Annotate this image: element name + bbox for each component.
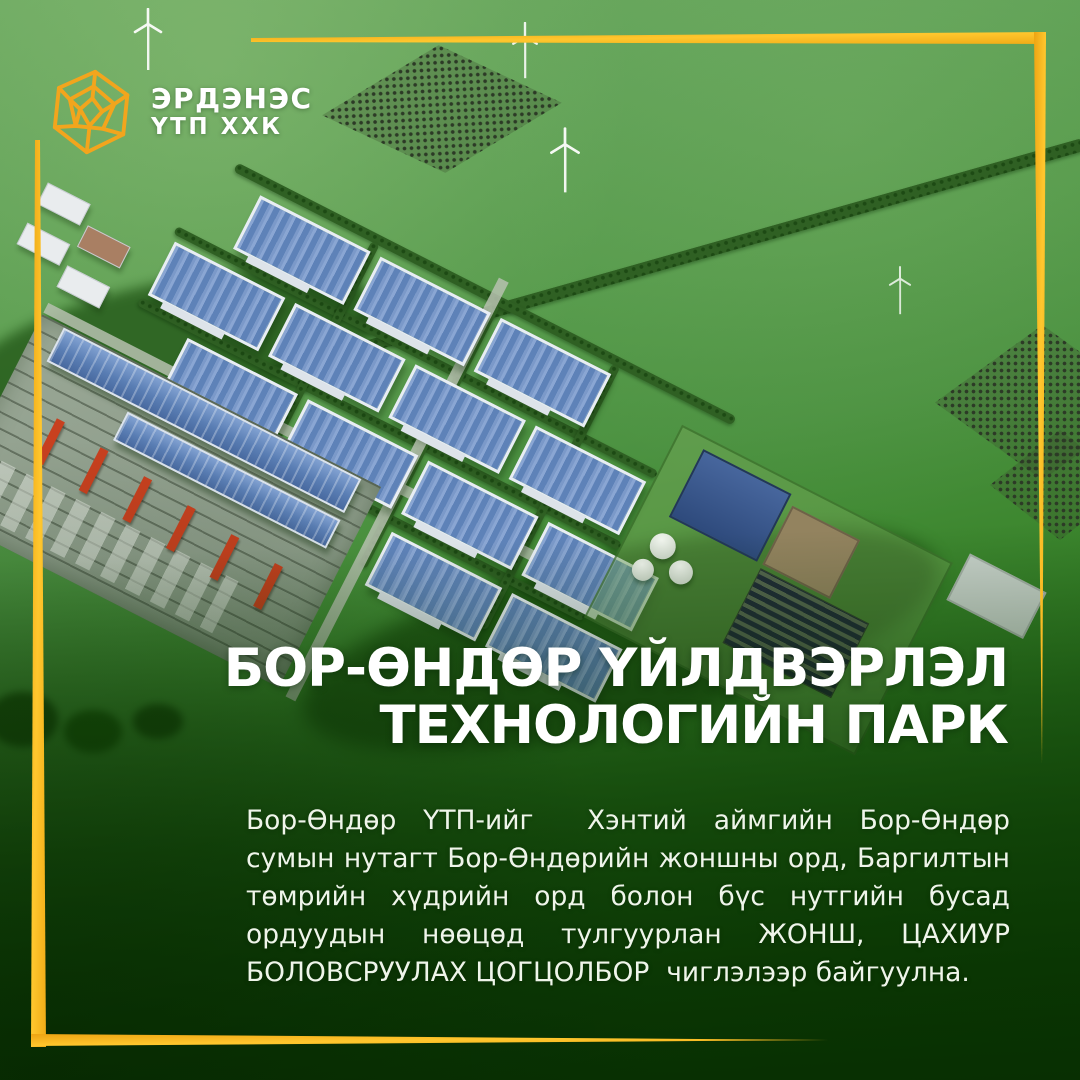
description-line: сумын нутагт Бор-Өндөрийн жоншны орд, Ба…	[246, 840, 1010, 878]
description-line: Бор-Өндөр ҮТП-ийг Хэнтий аймгийн Бор-Өнд…	[246, 802, 1010, 840]
gem-hexagon-icon	[48, 64, 134, 160]
poster: ЭРДЭНЭС ҮТП ХХК БОР-ӨНДӨР ҮЙЛДВЭРЛЭЛ ТЕХ…	[0, 0, 1080, 1080]
description-line: ордуудын нөөцөд тулгуурлан ЖОНШ, ЦАХИУР	[246, 916, 1010, 954]
headline: БОР-ӨНДӨР ҮЙЛДВЭРЛЭЛ ТЕХНОЛОГИЙН ПАРК	[224, 640, 1008, 754]
brand-subname: ҮТП ХХК	[151, 116, 313, 140]
brand-lockup: ЭРДЭНЭС ҮТП ХХК	[48, 64, 313, 160]
description: Бор-Өндөр ҮТП-ийг Хэнтий аймгийн Бор-Өнд…	[246, 802, 1010, 992]
description-line: төмрийн хүдрийн орд болон бүс нутгийн бу…	[246, 878, 1010, 916]
headline-line-2: ТЕХНОЛОГИЙН ПАРК	[224, 697, 1008, 754]
brand-name: ЭРДЭНЭС	[151, 84, 313, 113]
headline-line-1: БОР-ӨНДӨР ҮЙЛДВЭРЛЭЛ	[224, 640, 1008, 697]
description-line: БОЛОВСРУУЛАХ ЦОГЦОЛБОР чиглэлээр байгуул…	[246, 954, 1010, 992]
